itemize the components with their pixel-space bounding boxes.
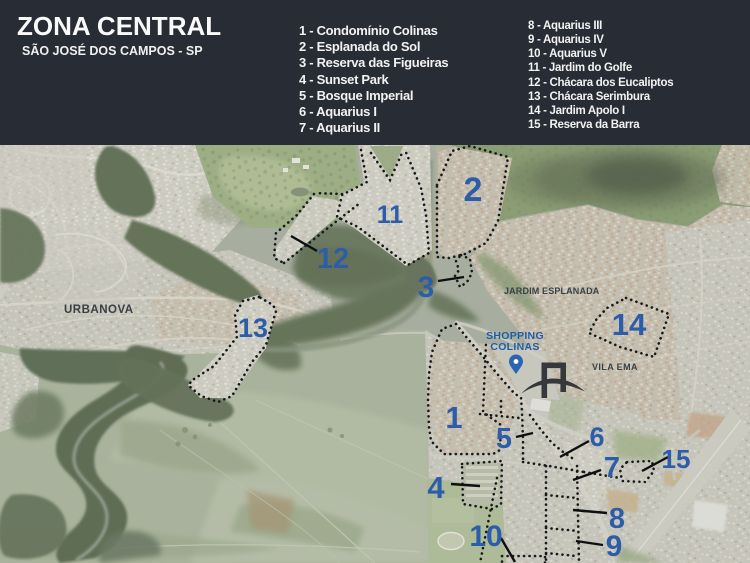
svg-text:3: 3: [418, 271, 435, 304]
svg-text:COLINAS: COLINAS: [490, 341, 539, 353]
svg-text:1: 1: [445, 400, 462, 435]
svg-text:URBANOVA: URBANOVA: [64, 304, 134, 316]
svg-text:VILA EMA: VILA EMA: [592, 362, 638, 372]
svg-text:13: 13: [238, 313, 268, 343]
svg-text:7: 7: [604, 452, 620, 484]
svg-text:5: 5: [496, 423, 512, 455]
svg-text:6: 6: [589, 422, 604, 452]
svg-text:9: 9: [606, 530, 623, 563]
svg-text:4: 4: [427, 470, 445, 505]
svg-text:11: 11: [377, 201, 404, 229]
svg-text:12: 12: [317, 243, 349, 275]
svg-text:14: 14: [612, 307, 647, 342]
svg-text:2: 2: [464, 171, 483, 209]
svg-text:15: 15: [662, 444, 691, 474]
svg-text:JARDIM ESPLANADA: JARDIM ESPLANADA: [504, 286, 600, 296]
svg-text:10: 10: [469, 520, 502, 553]
